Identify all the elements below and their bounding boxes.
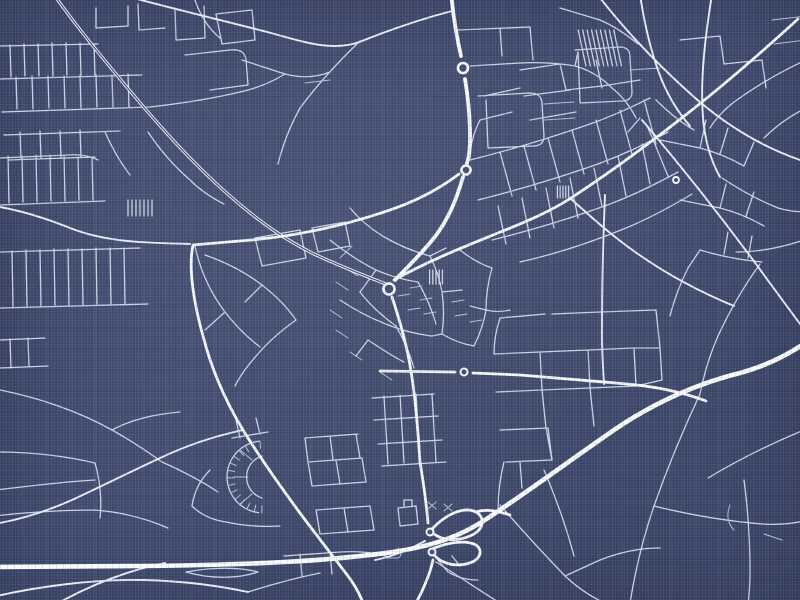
road-minor	[500, 100, 656, 196]
road-minor	[436, 562, 500, 600]
road-minor	[0, 338, 48, 368]
road-minor	[540, 348, 636, 460]
road-minor	[630, 394, 700, 600]
road-minor	[0, 390, 162, 462]
road-minor	[12, 248, 125, 307]
road-minor	[458, 27, 533, 60]
road-minor	[565, 548, 660, 576]
road-secondary	[0, 206, 190, 244]
map-roads-canvas	[0, 0, 800, 600]
hatch-field	[128, 200, 152, 216]
road-minor	[0, 480, 95, 490]
road-minor	[0, 248, 148, 308]
road-lane	[544, 68, 660, 120]
road-minor	[96, 4, 205, 40]
road-minor	[500, 428, 552, 462]
road-minor	[494, 312, 600, 354]
road-minor	[316, 506, 374, 534]
road-minor	[278, 41, 360, 164]
road-minor	[16, 74, 129, 109]
road-minor	[0, 155, 105, 205]
road-minor	[248, 573, 320, 592]
road-minor	[150, 60, 330, 107]
road-minor	[494, 348, 636, 392]
roundabout	[427, 529, 434, 536]
road-minor	[700, 232, 762, 262]
road-minor	[722, 178, 800, 212]
road-minor	[195, 246, 262, 347]
roundabout	[673, 177, 679, 183]
road-minor	[710, 60, 800, 128]
road-secondary	[0, 580, 248, 597]
road-minor	[305, 434, 366, 486]
road-minor	[560, 8, 638, 44]
road-minor	[500, 505, 612, 600]
road-lane	[428, 502, 452, 511]
hatch-field	[557, 186, 568, 198]
road-minor	[398, 500, 418, 526]
road-minor	[460, 250, 492, 310]
road-minor	[205, 255, 296, 386]
road-minor	[8, 155, 93, 203]
road-minor	[384, 394, 436, 464]
road-motorway	[0, 341, 800, 567]
road-minor	[764, 108, 800, 138]
roundabout	[461, 369, 468, 376]
roundabout	[384, 284, 395, 295]
road-minor	[350, 208, 430, 256]
road-minor	[185, 10, 255, 90]
road-minor	[544, 470, 574, 556]
road-minor	[680, 36, 766, 88]
road-secondary	[0, 430, 243, 524]
road-trunk	[451, 0, 461, 56]
road-lane	[764, 534, 782, 540]
road-primary	[416, 560, 433, 600]
road-primary	[432, 510, 510, 540]
roundabout	[462, 166, 471, 175]
road-primary	[392, 297, 428, 523]
road-minor	[478, 93, 544, 148]
road-minor	[186, 568, 258, 577]
road-minor	[470, 98, 650, 160]
road-primary	[191, 174, 459, 600]
road-minor	[247, 456, 262, 498]
road-trunk	[465, 79, 470, 163]
road-lane	[398, 286, 482, 322]
roundabout	[429, 549, 436, 556]
road-minor	[10, 43, 95, 77]
road-secondary	[602, 195, 605, 384]
road-minor	[0, 510, 168, 528]
road-minor	[105, 132, 224, 204]
road-lane	[728, 505, 734, 530]
blueprint-city-map-poster	[0, 0, 800, 600]
roundabout	[458, 63, 468, 73]
road-minor	[520, 194, 692, 262]
road-minor	[372, 394, 446, 466]
road-minor	[744, 480, 750, 600]
road-secondary	[640, 0, 690, 126]
road-minor	[654, 506, 800, 524]
road-lane	[305, 80, 330, 83]
road-minor	[708, 430, 800, 478]
road-primary	[394, 19, 798, 280]
